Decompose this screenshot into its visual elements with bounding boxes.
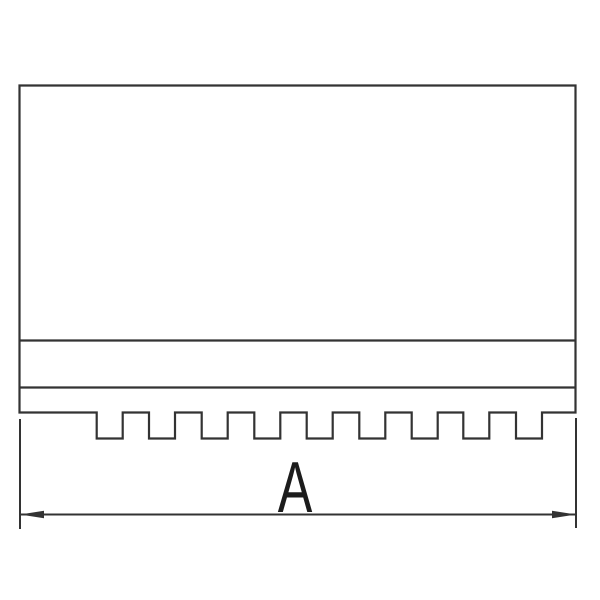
- dimension-label-a: A: [278, 448, 313, 528]
- jaw-body-outline: [20, 86, 576, 439]
- dimension-arrowhead-right-icon: [552, 511, 576, 519]
- dimension-arrowhead-left-icon: [20, 511, 44, 519]
- drawing-canvas: A: [0, 0, 600, 600]
- technical-drawing: A: [0, 0, 600, 600]
